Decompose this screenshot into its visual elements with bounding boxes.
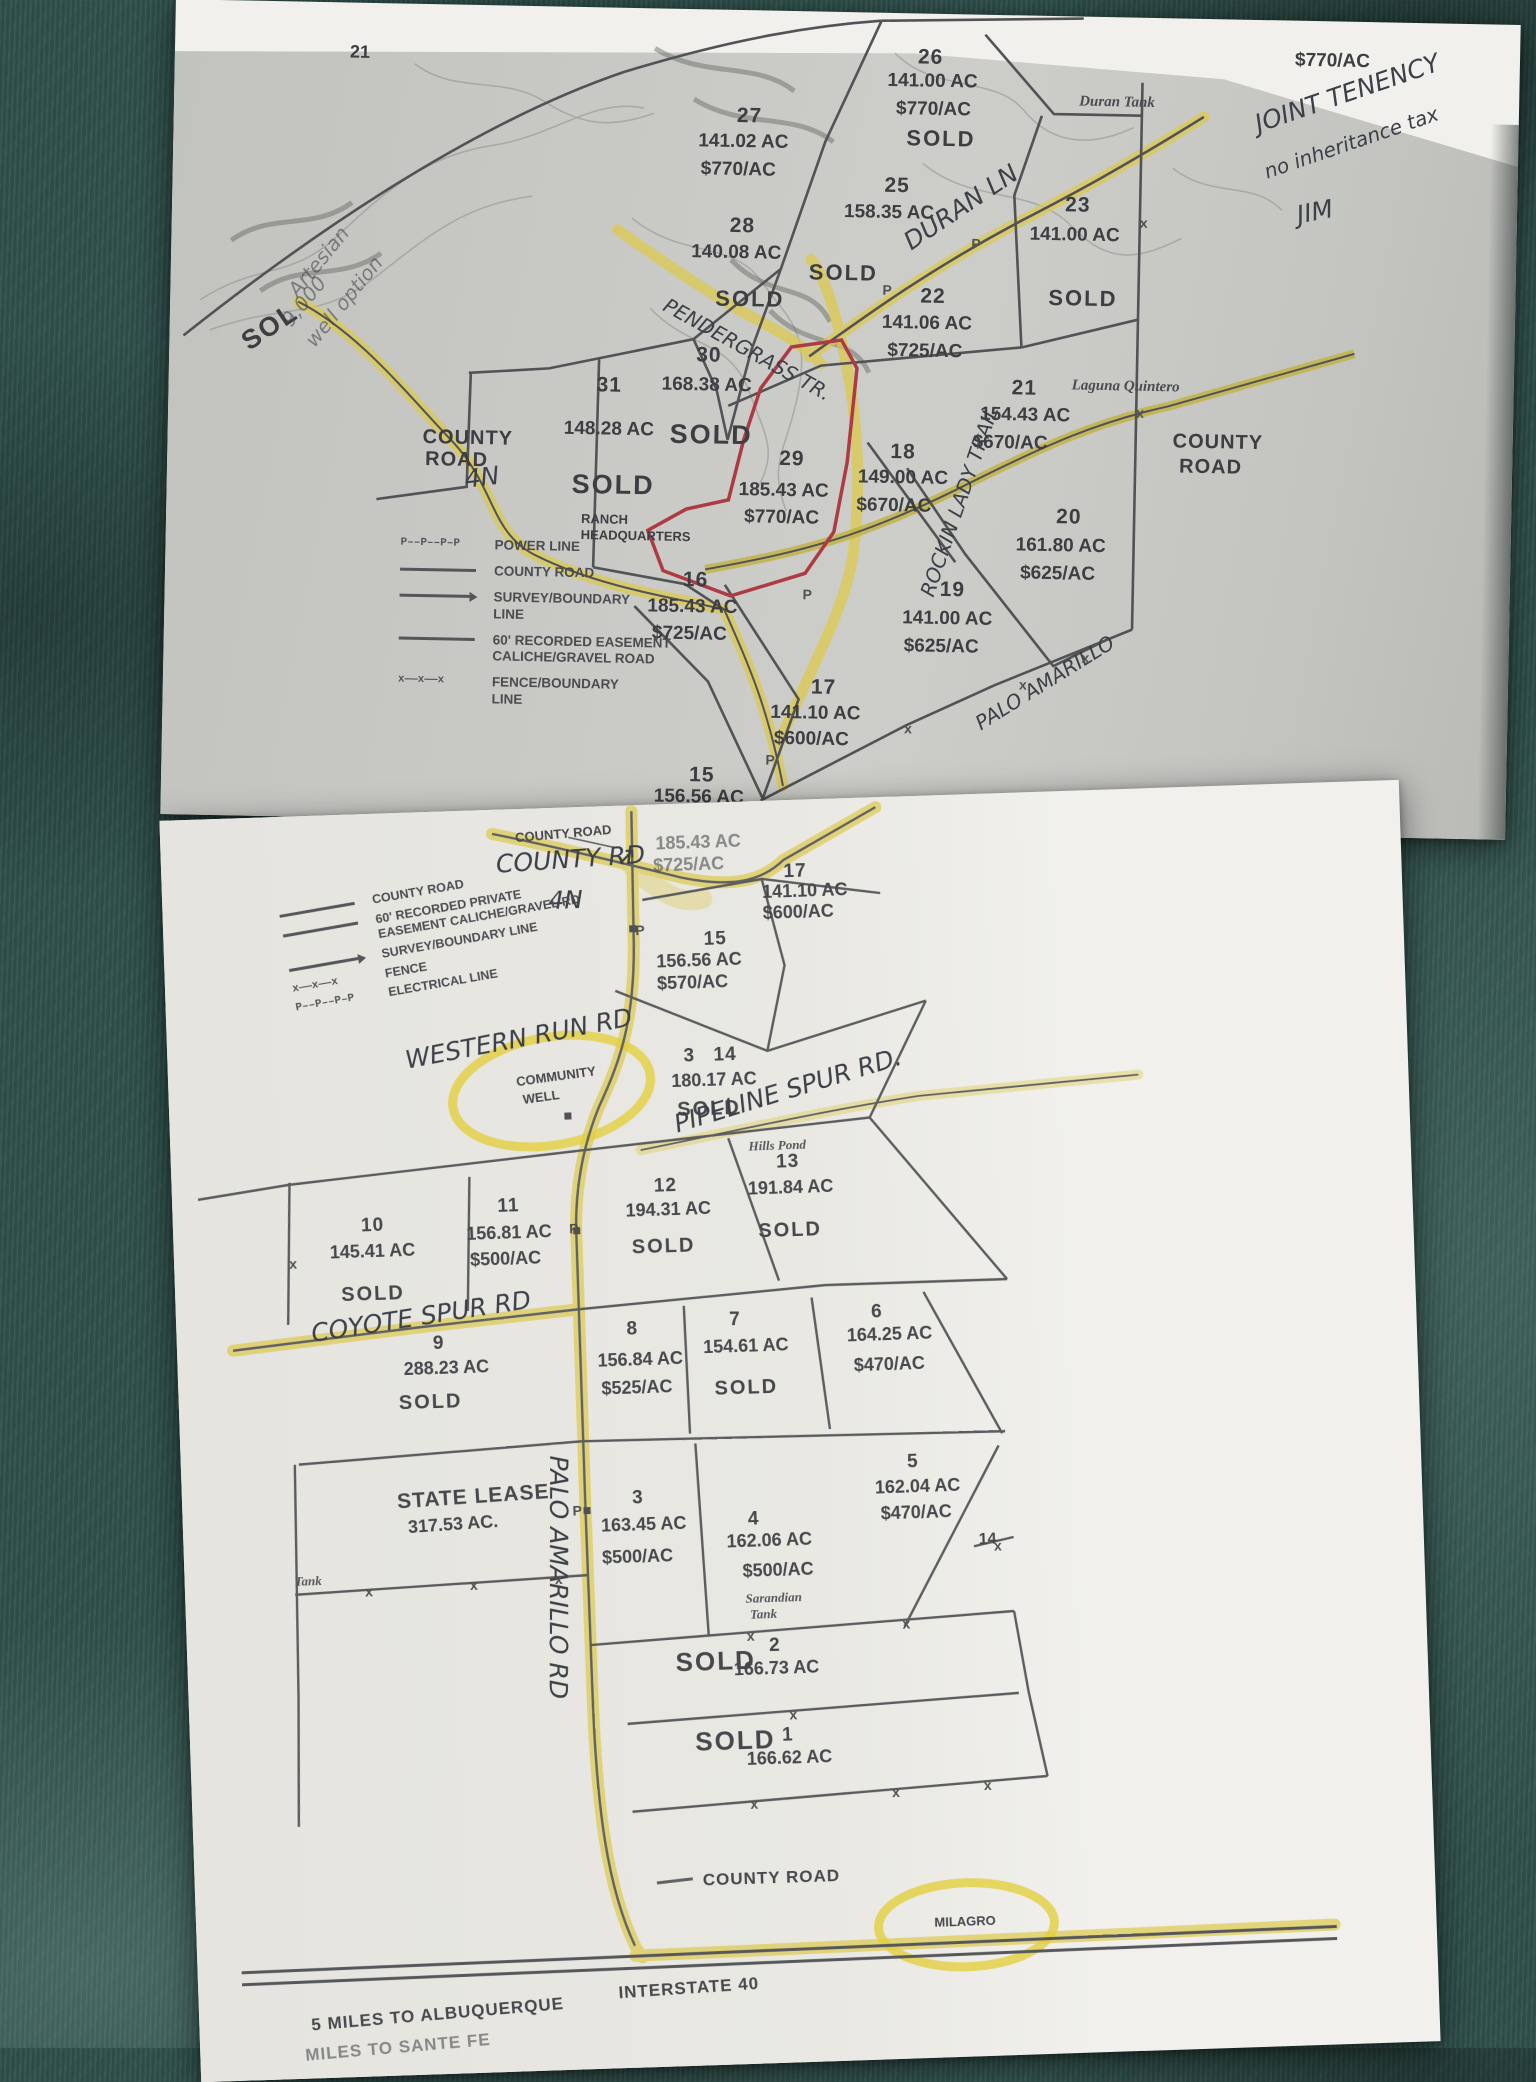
parcel-9-number: 9 [433,1334,445,1353]
parcel-16b-acreage: 185.43 AC [655,832,741,853]
duran-tank-label: Duran Tank [1079,95,1155,111]
parcel-30-status: SOLD [669,421,753,450]
parcel-18-number: 18 [890,441,916,462]
section-21-number: 21 [350,43,370,61]
parcel-19-price: $625/AC [903,636,978,656]
parcel-19-acreage: 141.00 AC [902,608,992,629]
parcel-31-acreage: 148.28 AC [564,419,654,440]
fence-x-marker: x [555,1572,563,1586]
stray-3-number: 3 [683,1046,695,1065]
photo-of-plat-maps: { "scene": { "description": "photo of tw… [0,0,1536,2048]
parcel-22-number: 22 [920,286,946,307]
legend-label: FENCE [384,959,428,982]
parcel-20-price: $625/AC [1020,563,1095,583]
tank-left-label: Tank [294,1574,321,1588]
parcel-17b-number: 17 [783,861,807,881]
fence-x-marker: x [750,1797,758,1811]
parcel-20-acreage: 161.80 AC [1015,535,1105,556]
parcel-10-number: 10 [361,1216,385,1236]
parcel-6-acreage: 164.25 AC [847,1324,933,1345]
fence-x-marker: x [1019,677,1027,691]
jim-note: JIM [1295,196,1335,227]
power-symbol-swatch: P––P––P–P [400,536,480,552]
parcel-31-number: 31 [596,374,622,395]
legend-label: POWER LINE [494,537,580,556]
parcel-28-acreage: 140.08 AC [691,242,781,263]
parcel-27-acreage: 141.02 AC [698,131,788,152]
line-symbol-swatch [399,630,479,646]
parcel-17-number: 17 [811,676,837,697]
parcel-6-price: $470/AC [854,1354,926,1374]
parcel-12-acreage: 194.31 AC [625,1199,711,1220]
ranch-headquarters-label-1: RANCH [581,512,628,528]
line-symbol-swatch [400,561,480,577]
parcel-23-status: SOLD [1048,287,1118,310]
tank-label-1: Sarandian [745,1590,802,1605]
parcel-28-status: SOLD [715,288,785,311]
parcel-6-number: 6 [871,1302,883,1321]
arrow-symbol-swatch [399,587,479,603]
parcel-2-acreage: 166.73 AC [734,1657,820,1678]
legend-row-60-recorded-easement: 60' RECORDED EASEMENT CALICHE/GRAVEL ROA… [398,630,739,670]
parcel-11-price: $500/AC [470,1248,542,1268]
county-road-left-label-1: COUNTY [422,426,513,450]
parcel-8-acreage: 156.84 AC [597,1349,683,1370]
tank-label-2: Tank [750,1607,777,1621]
parcel-13-status: SOLD [758,1219,822,1241]
fence-x-marker: x [904,721,912,735]
county-rd-4n-note: 4N [463,463,500,492]
fence-x-marker: x [470,1578,478,1592]
power-pole-marker: P [971,236,981,250]
parcel-5-number: 5 [907,1452,919,1471]
parcel-15b-price: $570/AC [657,972,729,992]
power-pole-marker: P [569,1221,579,1235]
parcel-26-price: $770/AC [896,99,971,119]
fence-x-marker: x [1136,406,1144,420]
legend-row-fence-boundary: x——x——xFENCE/BOUNDARY LINE [397,673,738,713]
parcel-12-number: 12 [653,1176,677,1196]
parcel-16b-price: $725/AC [653,854,725,874]
legend-label: 60' RECORDED EASEMENT CALICHE/GRAVEL ROA… [492,632,671,669]
parcel-29-acreage: 185.43 AC [738,480,828,501]
parcel-3-number: 3 [632,1488,644,1507]
parcel-26-acreage: 141.00 AC [887,71,977,92]
parcel-8-price: $525/AC [601,1377,673,1397]
legend-row-county-road: COUNTY ROAD [400,561,740,584]
parcel-13-number: 13 [776,1152,800,1172]
parcel-7-status: SOLD [714,1377,778,1399]
parcel-5-acreage: 162.04 AC [875,1476,961,1497]
parcel-4-price: $500/AC [742,1560,814,1580]
map1-legend: P––P––P–PPOWER LINECOUNTY ROADSURVEY/BOU… [397,536,740,722]
legend-row-survey-boundary: SURVEY/BOUNDARY LINE [399,587,740,627]
parcel-21-number: 21 [1011,377,1037,398]
parcel-30-number: 30 [696,344,722,365]
milagro-label: MILAGRO [934,1914,996,1929]
fence-x-marker: x [747,1629,755,1643]
power-pole-marker: P [803,587,813,601]
fence-x-marker: x [984,1778,992,1792]
parcel-1-acreage: 166.62 AC [747,1747,833,1768]
parcel-11-acreage: 156.81 AC [466,1222,552,1243]
power-pole-marker: P [635,923,645,937]
parcel-14-acreage: 180.17 AC [671,1069,757,1090]
laguna-quintero-label: Laguna Quintero [1072,378,1180,395]
power-pole-marker: P [882,283,892,297]
county-road-right-label-1: COUNTY [1172,430,1263,454]
parcel-19-number: 19 [940,579,966,600]
fence-x-marker: x [892,1785,900,1799]
fence-x-marker: x [1081,651,1089,665]
parcel-25-number: 25 [884,175,910,196]
county-road-bottom-label: COUNTY ROAD [703,1867,841,1889]
parcel-10-acreage: 145.41 AC [330,1241,416,1262]
parcel-2-number: 2 [769,1636,781,1655]
parcel-5-price: $470/AC [880,1502,952,1522]
parcel-11-number: 11 [497,1196,520,1216]
legend-label: SURVEY/BOUNDARY LINE [493,589,630,625]
legend-label: COUNTY ROAD [494,563,595,582]
power-pole-marker: P [572,1503,582,1517]
parcel-23-number: 23 [1065,194,1091,215]
fence-x-marker: x [902,1616,910,1630]
arrow-up-right-note: ↗ [615,843,637,869]
parcel-25-status: SOLD [809,261,879,284]
parcel-17b-acreage: 141.10 AC [762,880,848,901]
fence-symbol-swatch: x——x——x [398,673,478,689]
parcel-15b-number: 15 [703,929,727,949]
parcel-17-acreage: 141.10 AC [770,703,860,724]
parcel-10-status: SOLD [341,1283,405,1305]
parcel-4-acreage: 162.06 AC [726,1530,812,1551]
parcel-3-price: $500/AC [602,1546,674,1566]
fence-x-marker: x [365,1584,373,1598]
parcel-27-number: 27 [737,105,763,126]
parcel-9-status: SOLD [399,1391,463,1413]
parcel-14-number: 14 [713,1045,737,1065]
parcel-18-price: $670/AC [856,495,931,515]
parcel-7-number: 7 [729,1310,741,1329]
parcel-23-acreage: 141.00 AC [1029,225,1119,246]
parcel-22-price: $725/AC [887,341,962,361]
parcel-20-number: 20 [1056,506,1082,527]
price-top-right: $770/AC [1295,51,1370,71]
county-road-right-label-2: ROAD [1179,456,1242,479]
parcel-7-acreage: 154.61 AC [703,1335,789,1356]
fence-x-marker: x [789,1707,797,1721]
parcel-18-acreage: 149.00 AC [858,467,948,488]
parcel-26-number: 26 [918,46,944,67]
parcel-26-status: SOLD [906,127,976,150]
fence-x-marker: x [289,1257,297,1271]
parcel-12-status: SOLD [631,1235,695,1257]
parcel-13-acreage: 191.84 AC [748,1177,834,1198]
parcel-17-price: $600/AC [774,729,849,749]
lower-plat-map-sheet: COUNTY ROADCOUNTY RD4N↗185.43 AC$725/AC1… [159,780,1440,2082]
parcel-31-status: SOLD [571,471,655,500]
parcel-15-number: 15 [689,764,715,785]
legend-label: FENCE/BOUNDARY LINE [491,675,619,711]
parcel-22-acreage: 141.06 AC [882,313,972,334]
fence-x-marker: x [1140,216,1148,230]
parcel-4-number: 4 [748,1509,760,1528]
parcel-15b-acreage: 156.56 AC [656,950,742,971]
parcel-3-acreage: 163.45 AC [601,1514,687,1535]
upper-plat-map-sheet: 2126141.00 AC$770/ACSOLD$770/ACDuran Tan… [160,0,1520,840]
fence-x-marker: x [994,1538,1002,1552]
parcel-17b-price: $600/AC [763,902,835,922]
parcel-8-number: 8 [626,1319,638,1338]
parcel-30-acreage: 168.38 AC [661,375,751,396]
parcel-1-number: 1 [782,1725,794,1744]
power-pole-marker: P [765,753,775,767]
parcel-9-acreage: 288.23 AC [403,1357,489,1378]
parcel-29-number: 29 [779,448,805,469]
parcel-29-price: $770/AC [744,507,819,527]
parcel-28-number: 28 [730,215,756,236]
parcel-27-price: $770/AC [701,159,776,179]
